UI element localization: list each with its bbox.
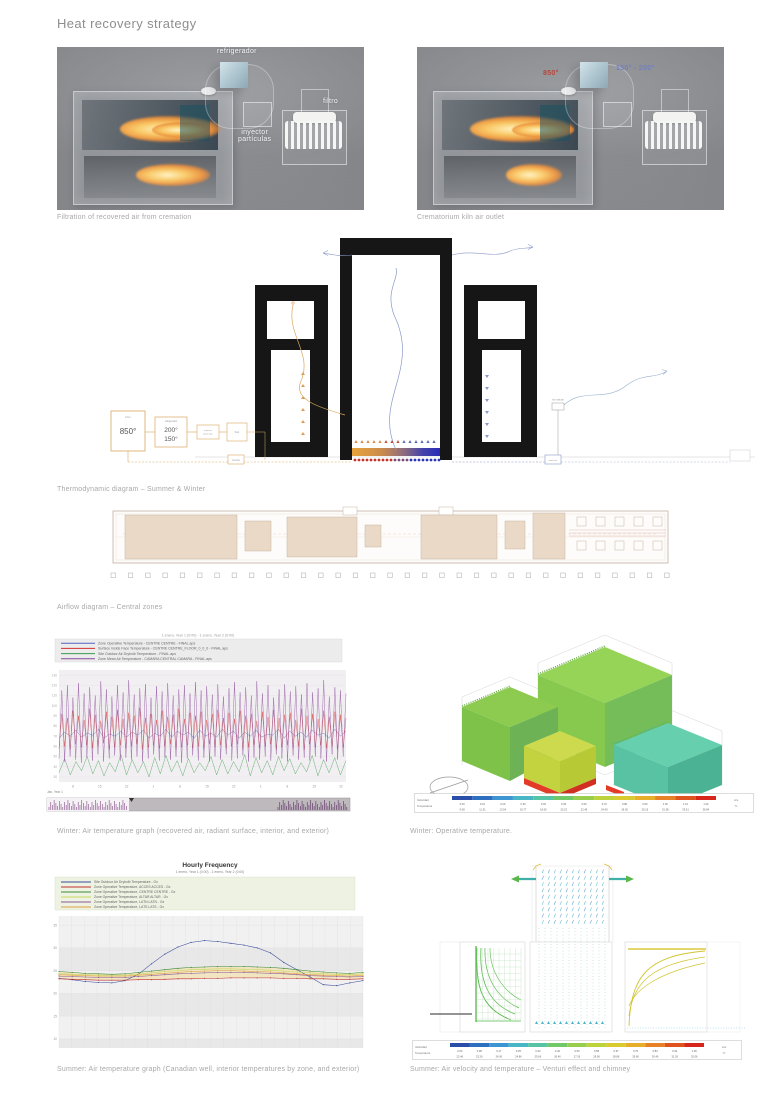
extract-box-label: extractor xyxy=(549,459,558,462)
kiln-upper-chamber xyxy=(442,100,578,150)
chimney-cap-mark xyxy=(533,864,541,870)
plan-column xyxy=(388,573,393,578)
plan-column xyxy=(111,573,116,578)
colorbar-value: 29.15 xyxy=(642,807,649,811)
summer-legend-item: Zone Operative Temperature, LATS LATS - … xyxy=(94,905,164,909)
injector-box-label2: partículas xyxy=(203,433,213,436)
colorbar-value: 20.23 xyxy=(560,807,567,811)
colorbar-value: 0.00 xyxy=(460,802,466,806)
flame xyxy=(512,122,574,138)
colorbar-row-label: Temperatura xyxy=(417,804,433,808)
plan-column xyxy=(249,573,254,578)
colorbar-value: 13.54 xyxy=(500,807,507,811)
plan-column xyxy=(595,573,600,578)
plan-column xyxy=(526,573,531,578)
page-title: Heat recovery strategy xyxy=(57,16,197,31)
filter-slats xyxy=(645,121,702,149)
colorbar-value: 0.00 xyxy=(457,1049,463,1053)
caption-filtration: Filtration of recovered air from cremati… xyxy=(57,214,191,221)
summer-y-tick: 15 xyxy=(53,1014,57,1018)
injector-glass-box xyxy=(603,102,632,127)
plan-column xyxy=(353,573,358,578)
plan-column xyxy=(163,573,168,578)
winter-legend-item: Site Outdoor Air Drybulb Temperature - F… xyxy=(98,652,176,656)
winter-legend-item: Zone Operative Temperature - CENTRE CENT… xyxy=(98,642,195,646)
winter-y-tick: 50 xyxy=(53,755,57,759)
caption-winter-graph: Winter: Air temperature graph (recovered… xyxy=(57,828,329,835)
plan-column xyxy=(647,573,652,578)
plan-column xyxy=(630,573,635,578)
thermodynamic-section-diagram: Forn 850° refrigerador 200° 150° inyecto… xyxy=(55,235,765,485)
colorbar-value: 35.84 xyxy=(703,807,710,811)
colorbar-value: 0.50 xyxy=(574,1049,580,1053)
kiln-upper-chamber xyxy=(82,100,218,150)
injector-box-label1: inyector xyxy=(204,429,212,432)
colorbar-value: 0.25 xyxy=(516,1049,522,1053)
colorbar-value: 28.06 xyxy=(593,1054,600,1058)
summer-y-tick: 20 xyxy=(53,992,57,996)
plan-column xyxy=(198,573,203,578)
colorbar-value: 0.60 xyxy=(581,802,587,806)
winter-y-tick: 70 xyxy=(53,734,57,738)
colorbar-unit: m/s xyxy=(722,1045,727,1049)
label-refrigerador: refrigerador xyxy=(217,48,257,55)
colorbar-value: 24.69 xyxy=(601,807,608,811)
plan-column xyxy=(232,573,237,578)
winter-operative-temperature-3d xyxy=(410,635,760,805)
plan-column xyxy=(301,573,306,578)
summer-y-tick: 10 xyxy=(53,1037,57,1041)
colorbar-value: 0.67 xyxy=(614,1049,620,1053)
flame xyxy=(506,164,562,186)
colorbar-value: 0.30 xyxy=(521,802,527,806)
colorbar-value: 0.70 xyxy=(602,802,608,806)
refrigerator-box xyxy=(220,62,248,88)
filter-glass-box xyxy=(282,110,347,165)
chimney-cap-mark xyxy=(604,864,612,870)
summer-legend-item: Zone Operative Temperature, ALTAR ALTAR … xyxy=(94,895,168,899)
colorbar-row-label: Temperatura xyxy=(415,1051,431,1055)
injector-glass-box xyxy=(243,102,272,127)
plan-column xyxy=(371,573,376,578)
colorbar-value: 0.92 xyxy=(672,1049,678,1053)
colorbar-value: 1.00 xyxy=(692,1049,698,1053)
colorbar-value: 0.10 xyxy=(480,802,486,806)
winter-y-tick: 100 xyxy=(52,704,58,708)
kiln-box-label: Forn xyxy=(125,415,131,419)
summer-y-tick: 25 xyxy=(53,969,57,973)
plan-column xyxy=(544,573,549,578)
colorbar-value: 0.80 xyxy=(622,802,628,806)
kiln-lower-chamber xyxy=(444,156,576,198)
colorbar-value: 26.46 xyxy=(554,1054,561,1058)
plan-column xyxy=(613,573,618,578)
colorbar-value: 15.77 xyxy=(520,807,527,811)
colorbar-value: 1.00 xyxy=(663,802,669,806)
plan-column xyxy=(457,573,462,578)
plan-column xyxy=(128,573,133,578)
plan-column xyxy=(215,573,220,578)
summer-cfd-diagram xyxy=(415,858,745,1036)
colorbar-value: 0.50 xyxy=(561,802,567,806)
plan-column xyxy=(578,573,583,578)
summer-y-tick: 30 xyxy=(53,946,57,950)
winter-x-tick: 22 xyxy=(232,785,236,789)
caption-winter-op: Winter: Operative temperature. xyxy=(410,828,512,835)
colorbar-row-label: Velocidad xyxy=(417,798,429,802)
colorbar-row-label: Velocidad xyxy=(415,1045,427,1049)
colorbar-value: 11.31 xyxy=(479,807,486,811)
fan-box-label: Fan xyxy=(235,430,240,434)
colorbar-value: 1.10 xyxy=(683,802,689,806)
colorbar-value: 31.26 xyxy=(671,1054,678,1058)
colorbar-value: 0.75 xyxy=(633,1049,639,1053)
winter-y-tick: 40 xyxy=(53,765,57,769)
summer-legend-item: Zone Operative Temperature, CENTRE CENTR… xyxy=(94,890,176,894)
summer-chart-subtitle: 1 enero, Year 1 (0:00) - 1 enero, Year 2… xyxy=(176,870,245,874)
render-kiln-outlet-image: 850° 150° - 200° xyxy=(417,47,724,210)
label-inyector-line1: inyector xyxy=(241,129,268,136)
winter-x-axis-label: Jan, Year 1 xyxy=(47,790,63,794)
summer-hourly-frequency-chart: Hourly Frequency1 enero, Year 1 (0:00) -… xyxy=(45,858,375,1058)
portfolio-page: Heat recovery strategy refrigerador inye… xyxy=(0,0,780,1103)
caption-thermo: Thermodynamic diagram – Summer & Winter xyxy=(57,486,205,493)
colorbar-value: 28.86 xyxy=(613,1054,620,1058)
colorbar-value: 31.38 xyxy=(662,807,669,811)
colorbar-value: 29.66 xyxy=(632,1054,639,1058)
flame xyxy=(136,164,210,186)
cooler-box-value1: 200° xyxy=(164,426,178,434)
colorbar-value: 9.08 xyxy=(460,807,466,811)
label-temp-hot: 850° xyxy=(543,70,559,77)
plan-column xyxy=(665,573,670,578)
plan-column xyxy=(440,573,445,578)
colorbar-value: 26.92 xyxy=(621,807,628,811)
colorbar-value: 32.06 xyxy=(691,1054,698,1058)
winter-x-tick: 8 xyxy=(179,785,181,789)
colorbar-value: 0.20 xyxy=(500,802,506,806)
winter-x-tick: 22 xyxy=(339,785,343,789)
colorbar-value: 24.86 xyxy=(515,1054,522,1058)
plan-column xyxy=(284,573,289,578)
cooler-box-value2: 150° xyxy=(164,435,178,443)
winter-x-tick: 15 xyxy=(98,785,102,789)
plan-column xyxy=(474,573,479,578)
colorbar-value: 0.17 xyxy=(496,1049,502,1053)
colorbar-value: 0.83 xyxy=(653,1049,659,1053)
airflow-floor-plan xyxy=(103,503,680,591)
filter-slats xyxy=(285,121,342,149)
plan-column xyxy=(180,573,185,578)
winter-x-tick: 22 xyxy=(125,785,129,789)
winter-temperature-chart: 1 enero, Year 1 (0:00) - 1 enero, Year 2… xyxy=(45,630,352,824)
summer-chart-title: Hourly Frequency xyxy=(182,862,238,869)
label-inyector-particulas: inyectorpartículas xyxy=(238,129,271,143)
zone-blocks xyxy=(462,646,722,807)
colorbar-value: 27.26 xyxy=(574,1054,581,1058)
winter-y-tick: 80 xyxy=(53,724,57,728)
winter-x-tick: 1 xyxy=(153,785,155,789)
colorbar-value: 25.66 xyxy=(535,1054,542,1058)
colorbar-value: 0.33 xyxy=(535,1049,541,1053)
vent-label: tiro natural xyxy=(552,399,564,402)
right-room-streamlines xyxy=(627,949,745,1028)
filter-glass-box xyxy=(642,110,707,165)
summer-colorbar: VelocidadTemperatura0.000.080.170.250.33… xyxy=(412,1040,742,1060)
colorbar-value: 33.61 xyxy=(682,807,689,811)
colorbar-value: 0.40 xyxy=(541,802,547,806)
kiln-lower-chamber xyxy=(84,156,216,198)
flame xyxy=(152,122,214,138)
winter-x-tick: 8 xyxy=(287,785,289,789)
winter-chart-date-range: 1 enero, Year 1 (0:00) - 1 enero, Year 2… xyxy=(162,634,235,638)
winter-x-tick: 15 xyxy=(205,785,209,789)
plan-column xyxy=(492,573,497,578)
plan-column xyxy=(509,573,514,578)
colorbar-value: 22.46 xyxy=(581,807,588,811)
pump-box-label: bomba xyxy=(232,459,240,462)
winter-x-tick: 15 xyxy=(312,785,316,789)
colorbar-value: 24.06 xyxy=(496,1054,503,1058)
caption-summer-cfd: Summer: Air velocity and temperature – V… xyxy=(410,1066,630,1073)
caption-kiln-outlet: Crematorium kiln air outlet xyxy=(417,214,504,221)
plan-column xyxy=(405,573,410,578)
winter-x-tick: 8 xyxy=(72,785,74,789)
colorbar-value: 1.20 xyxy=(703,802,709,806)
colorbar-unit: m/s xyxy=(734,798,739,802)
plan-column xyxy=(422,573,427,578)
colorbar-value: 0.08 xyxy=(477,1049,483,1053)
refrigerator-box xyxy=(580,62,608,88)
plan-column xyxy=(267,573,272,578)
colorbar-unit: °C xyxy=(734,804,737,808)
summer-legend-item: Site Outdoor Air Drybulb Temperature - G… xyxy=(94,880,158,884)
winter-legend-item: Surface Inside Face Temperature - CENTRE… xyxy=(98,647,228,651)
summer-y-tick: 35 xyxy=(53,923,57,927)
winter-y-tick: 60 xyxy=(53,745,57,749)
render-filtration-image: refrigerador inyectorpartículas filtro xyxy=(57,47,364,210)
label-filtro: filtro xyxy=(323,98,338,105)
label-temp-cool: 150° - 200° xyxy=(616,65,654,72)
summer-legend-item: Zone Operative Temperature, LATN LATN - … xyxy=(94,900,165,904)
caption-summer-graph: Summer: Air temperature graph (Canadian … xyxy=(57,1066,359,1073)
plan-column xyxy=(561,573,566,578)
caption-plan: Airflow diagram – Central zones xyxy=(57,604,162,611)
winter-colorbar: VelocidadTemperatura0.000.100.200.300.40… xyxy=(414,793,754,813)
colorbar-value: 18.00 xyxy=(540,807,547,811)
winter-y-tick: 30 xyxy=(53,775,57,779)
colorbar-unit: °C xyxy=(722,1051,725,1055)
winter-legend-item: Zone Mean Air Temperature - CAMARA CENTR… xyxy=(98,657,212,661)
winter-y-tick: 120 xyxy=(52,683,58,687)
colorbar-value: 0.90 xyxy=(642,802,648,806)
condenser-box xyxy=(730,450,750,461)
kiln-box-value: 850° xyxy=(120,427,137,436)
winter-y-tick: 110 xyxy=(52,694,57,698)
label-inyector-line2: partículas xyxy=(238,136,271,143)
colorbar-value: 22.46 xyxy=(457,1054,464,1058)
plan-column xyxy=(336,573,341,578)
winter-x-tick: 1 xyxy=(260,785,262,789)
colorbar-value: 0.58 xyxy=(594,1049,600,1053)
colorbar-value: 23.26 xyxy=(476,1054,483,1058)
summer-legend-item: Zone Operative Temperature, ACCES ACCES … xyxy=(94,885,171,889)
colorbar-value: 0.42 xyxy=(555,1049,561,1053)
colorbar-value: 30.46 xyxy=(652,1054,659,1058)
plan-column xyxy=(146,573,151,578)
left-room-streamlines xyxy=(476,946,521,1022)
winter-y-tick: 90 xyxy=(53,714,57,718)
cooler-box-label: refrigerador xyxy=(165,420,178,423)
plan-column xyxy=(319,573,324,578)
winter-y-tick: 130 xyxy=(52,673,58,677)
